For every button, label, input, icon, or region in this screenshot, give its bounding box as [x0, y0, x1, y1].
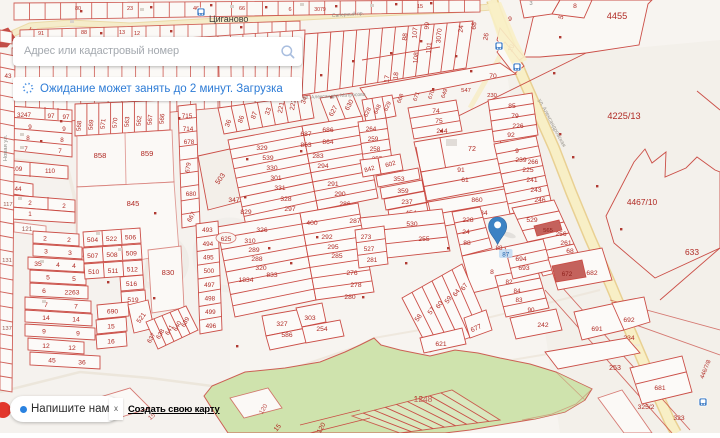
svg-text:672: 672: [562, 271, 573, 278]
svg-text:68: 68: [471, 22, 479, 30]
svg-text:621: 621: [435, 341, 446, 348]
svg-text:72: 72: [468, 145, 476, 153]
svg-text:18: 18: [393, 72, 401, 80]
svg-text:500: 500: [204, 268, 215, 275]
svg-text:686: 686: [322, 127, 333, 134]
svg-text:303: 303: [304, 315, 315, 322]
svg-text:3: 3: [68, 250, 72, 257]
svg-text:506: 506: [125, 234, 136, 241]
svg-text:512: 512: [127, 266, 138, 273]
svg-text:8: 8: [60, 137, 64, 144]
svg-text:6: 6: [288, 7, 291, 13]
svg-text:5: 5: [46, 275, 50, 282]
svg-text:255: 255: [418, 236, 429, 243]
svg-text:498: 498: [205, 296, 216, 303]
svg-text:99: 99: [424, 22, 432, 30]
svg-text:7: 7: [74, 304, 78, 311]
svg-text:4225/13: 4225/13: [607, 111, 640, 121]
svg-text:539: 539: [262, 155, 273, 162]
svg-text:87: 87: [502, 252, 510, 259]
svg-text:565: 565: [543, 228, 554, 234]
svg-text:4455: 4455: [607, 11, 627, 21]
svg-text:43: 43: [4, 73, 12, 80]
svg-text:400: 400: [306, 220, 317, 227]
svg-text:107: 107: [412, 27, 420, 39]
svg-text:237: 237: [401, 199, 412, 206]
svg-text:567: 567: [147, 114, 155, 126]
svg-text:12: 12: [42, 343, 50, 350]
svg-text:331: 331: [274, 185, 285, 192]
svg-text:289: 289: [248, 247, 259, 254]
svg-text:495: 495: [203, 254, 214, 261]
svg-text:14: 14: [72, 317, 80, 324]
svg-text:13: 13: [119, 30, 125, 36]
svg-text:625: 625: [221, 236, 232, 243]
svg-text:2: 2: [43, 235, 47, 242]
svg-text:2: 2: [28, 200, 32, 207]
svg-text:310: 310: [244, 238, 255, 245]
svg-text:682: 682: [586, 270, 597, 277]
svg-text:499: 499: [205, 309, 216, 316]
svg-text:715: 715: [182, 113, 193, 120]
svg-text:7: 7: [24, 146, 28, 153]
svg-text:258: 258: [370, 146, 381, 153]
svg-text:12: 12: [68, 345, 76, 352]
svg-text:256: 256: [555, 231, 566, 238]
svg-text:586: 586: [281, 332, 292, 339]
svg-text:690: 690: [107, 309, 118, 316]
svg-text:23: 23: [127, 6, 133, 12]
svg-text:45: 45: [48, 358, 56, 365]
svg-text:97: 97: [62, 114, 70, 121]
svg-text:496: 496: [206, 323, 217, 330]
svg-text:328: 328: [280, 196, 291, 203]
svg-text:14: 14: [42, 315, 50, 322]
svg-text:678: 678: [184, 139, 195, 146]
svg-text:694: 694: [515, 256, 526, 263]
svg-text:568: 568: [76, 120, 84, 132]
svg-text:563: 563: [124, 116, 132, 128]
svg-text:864: 864: [322, 139, 333, 146]
svg-text:261: 261: [560, 240, 571, 247]
svg-text:1834: 1834: [239, 277, 254, 284]
svg-text:497: 497: [204, 282, 215, 289]
svg-text:530: 530: [406, 221, 417, 228]
svg-text:108: 108: [413, 52, 421, 64]
svg-text:692: 692: [623, 317, 634, 324]
svg-text:329: 329: [256, 145, 267, 152]
svg-text:830: 830: [162, 268, 175, 277]
svg-text:9: 9: [28, 124, 32, 131]
svg-text:327: 327: [276, 321, 287, 328]
svg-text:693: 693: [518, 265, 529, 272]
svg-text:24: 24: [462, 229, 470, 236]
svg-text:5: 5: [72, 276, 76, 283]
svg-text:15: 15: [107, 324, 115, 331]
svg-text:569: 569: [88, 119, 96, 131]
svg-text:230: 230: [487, 93, 498, 99]
svg-text:88: 88: [495, 245, 503, 252]
svg-text:276: 276: [346, 270, 357, 277]
svg-text:4: 4: [56, 262, 60, 269]
svg-text:242: 242: [537, 322, 548, 329]
svg-text:527: 527: [364, 246, 375, 253]
svg-text:680: 680: [186, 191, 197, 198]
svg-text:24: 24: [458, 25, 466, 33]
svg-text:225: 225: [522, 167, 533, 174]
svg-text:280: 280: [344, 294, 355, 301]
svg-text:17: 17: [384, 75, 392, 83]
svg-text:860: 860: [471, 197, 482, 204]
svg-text:3247: 3247: [17, 112, 32, 119]
svg-text:320: 320: [255, 265, 266, 272]
svg-text:117: 117: [3, 202, 12, 208]
svg-text:570: 570: [112, 117, 120, 129]
svg-text:92: 92: [507, 132, 515, 139]
svg-text:273: 273: [361, 234, 372, 241]
svg-text:566: 566: [159, 113, 167, 125]
svg-text:3079: 3079: [314, 7, 326, 13]
svg-text:121: 121: [22, 226, 33, 233]
svg-text:287: 287: [349, 218, 360, 225]
svg-text:243: 243: [530, 187, 541, 194]
svg-text:571: 571: [100, 118, 108, 130]
svg-text:353: 353: [393, 176, 404, 183]
svg-text:3: 3: [44, 248, 48, 255]
svg-text:2: 2: [67, 237, 71, 244]
svg-text:226: 226: [512, 123, 523, 130]
svg-text:359: 359: [397, 188, 408, 195]
svg-text:6: 6: [42, 288, 46, 295]
svg-text:66: 66: [239, 6, 245, 12]
svg-text:859: 859: [141, 149, 154, 158]
svg-text:8: 8: [573, 3, 577, 10]
svg-text:516: 516: [126, 281, 137, 288]
svg-text:285: 285: [331, 253, 342, 260]
svg-text:266: 266: [528, 159, 539, 166]
svg-text:833: 833: [266, 272, 277, 279]
svg-text:97: 97: [47, 113, 55, 120]
svg-text:863: 863: [300, 142, 311, 149]
svg-text:88: 88: [81, 30, 87, 36]
svg-text:9: 9: [76, 331, 80, 338]
svg-text:295: 295: [327, 244, 338, 251]
svg-text:9: 9: [42, 329, 46, 336]
svg-text:508: 508: [106, 252, 117, 259]
svg-text:493: 493: [202, 227, 213, 234]
svg-text:829: 829: [240, 209, 251, 216]
svg-text:259: 259: [368, 136, 379, 143]
svg-text:845: 845: [127, 199, 140, 208]
svg-text:101: 101: [426, 42, 434, 54]
svg-text:9: 9: [62, 126, 66, 133]
svg-text:4467/10: 4467/10: [627, 197, 658, 207]
svg-text:494: 494: [203, 241, 214, 248]
svg-text:9: 9: [515, 148, 519, 155]
svg-text:714: 714: [183, 126, 194, 133]
svg-text:283: 283: [312, 153, 323, 160]
svg-text:291: 291: [327, 181, 338, 188]
svg-text:239: 239: [515, 157, 526, 164]
svg-text:858: 858: [94, 151, 107, 160]
svg-text:7: 7: [58, 148, 62, 155]
svg-text:88: 88: [463, 240, 471, 247]
svg-text:687: 687: [300, 131, 311, 138]
svg-text:85: 85: [508, 103, 516, 110]
svg-text:278: 278: [350, 282, 361, 289]
svg-text:4: 4: [72, 263, 76, 270]
svg-text:297: 297: [284, 206, 295, 213]
svg-text:294: 294: [317, 163, 328, 170]
svg-text:288: 288: [251, 256, 262, 263]
svg-text:75: 75: [435, 118, 443, 125]
svg-text:88: 88: [402, 33, 410, 41]
svg-text:74: 74: [432, 108, 440, 115]
svg-text:241: 241: [526, 177, 537, 184]
svg-text:292: 292: [321, 234, 332, 241]
svg-text:70: 70: [489, 73, 497, 80]
svg-text:281: 281: [367, 257, 378, 264]
svg-text:290: 290: [334, 191, 345, 198]
svg-text:323: 323: [673, 415, 684, 422]
svg-text:2: 2: [62, 203, 66, 210]
svg-text:325/2: 325/2: [638, 404, 655, 411]
svg-text:91: 91: [457, 167, 465, 174]
svg-text:511: 511: [108, 268, 119, 275]
svg-text:137: 137: [2, 326, 12, 332]
svg-text:301: 301: [270, 175, 281, 182]
svg-text:254: 254: [316, 326, 327, 333]
svg-text:507: 507: [87, 253, 98, 260]
svg-text:84: 84: [513, 288, 521, 295]
svg-text:16: 16: [107, 339, 115, 346]
svg-text:Циганово: Циганово: [209, 14, 248, 24]
svg-text:15: 15: [417, 4, 423, 10]
svg-text:562: 562: [136, 115, 144, 127]
svg-text:522: 522: [106, 236, 117, 243]
svg-text:79: 79: [511, 113, 519, 120]
svg-text:2263: 2263: [65, 290, 80, 297]
svg-text:228: 228: [462, 217, 473, 224]
svg-text:504: 504: [87, 237, 98, 244]
svg-text:82: 82: [505, 279, 513, 286]
svg-text:1: 1: [28, 211, 32, 218]
svg-text:110: 110: [45, 168, 56, 175]
svg-text:Новая ул.: Новая ул.: [3, 134, 9, 161]
svg-text:61: 61: [461, 177, 469, 184]
svg-text:633: 633: [685, 247, 699, 257]
svg-text:83: 83: [515, 297, 523, 304]
svg-text:681: 681: [654, 385, 665, 392]
svg-text:3070: 3070: [435, 28, 443, 44]
svg-text:44: 44: [14, 186, 22, 193]
svg-text:529: 529: [526, 217, 537, 224]
svg-text:509: 509: [126, 250, 137, 257]
svg-text:347: 347: [228, 197, 239, 204]
svg-text:8: 8: [26, 135, 30, 142]
svg-text:547: 547: [461, 88, 471, 94]
svg-text:253: 253: [609, 364, 621, 372]
svg-text:36: 36: [78, 359, 86, 366]
svg-text:330: 330: [266, 165, 277, 172]
svg-text:510: 510: [88, 269, 99, 276]
svg-text:691: 691: [591, 326, 602, 333]
svg-text:264: 264: [366, 126, 377, 133]
svg-text:8: 8: [490, 269, 494, 276]
svg-text:131: 131: [2, 258, 12, 264]
svg-text:326: 326: [256, 227, 267, 234]
svg-text:26: 26: [482, 32, 490, 41]
